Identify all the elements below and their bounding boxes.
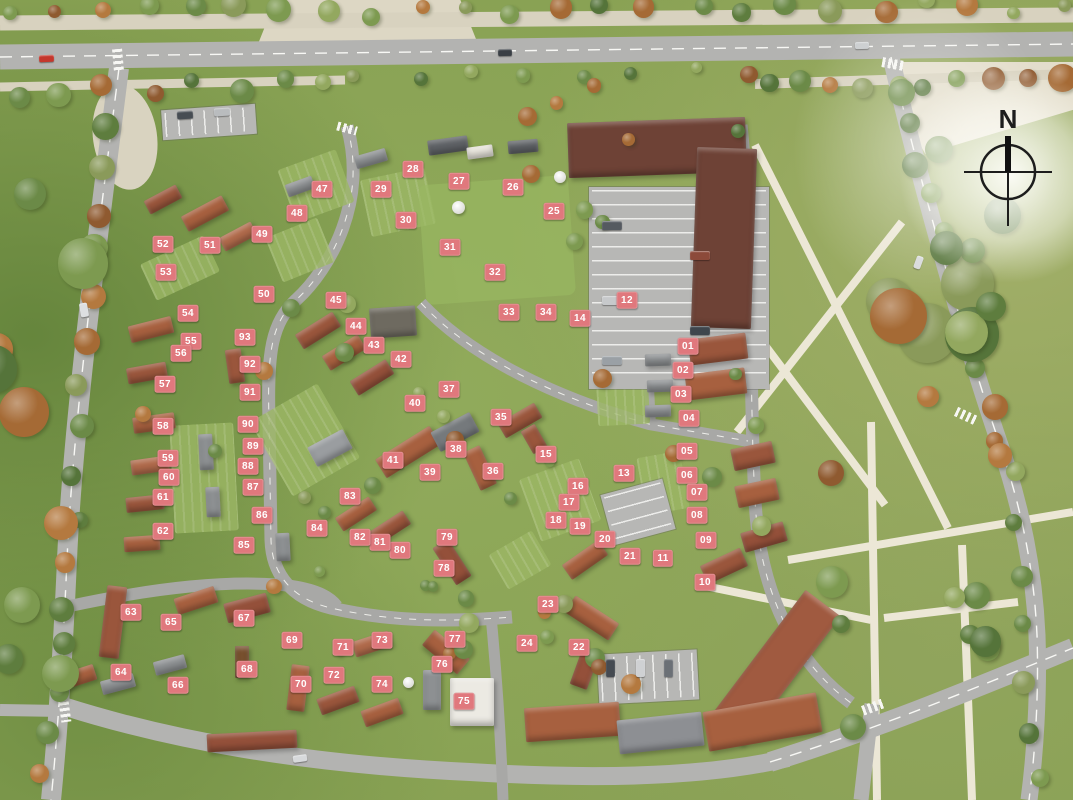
tree [277,70,294,87]
plot-marker-77[interactable]: 77 [445,631,466,648]
plot-marker-84[interactable]: 84 [307,520,328,537]
tree [147,85,164,102]
tree [504,492,517,505]
tree [1005,514,1022,531]
plot-marker-34[interactable]: 34 [536,304,557,321]
plot-marker-30[interactable]: 30 [396,212,417,229]
tree [917,386,939,408]
tree [4,587,40,623]
tree [298,491,311,504]
tree [314,566,325,577]
tree [748,417,764,433]
plot-marker-76[interactable]: 76 [432,656,453,673]
plot-marker-41[interactable]: 41 [383,452,404,469]
plot-marker-17[interactable]: 17 [559,494,580,511]
building [507,138,538,154]
tree [459,1,472,14]
crosswalk [112,49,124,72]
plot-marker-40[interactable]: 40 [405,395,426,412]
plot-marker-60[interactable]: 60 [159,469,180,486]
plot-marker-69[interactable]: 69 [282,632,303,649]
plot-marker-72[interactable]: 72 [324,667,345,684]
tree [89,155,114,180]
plot-marker-04[interactable]: 04 [679,410,700,427]
plot-marker-73[interactable]: 73 [372,632,393,649]
tree [458,590,474,606]
plot-marker-13[interactable]: 13 [614,465,635,482]
plot-marker-51[interactable]: 51 [200,237,221,254]
tree [948,70,964,86]
car [690,251,710,260]
compass-icon: N [958,104,1058,226]
tree [982,394,1007,419]
tree [1011,566,1032,587]
tree [691,62,702,73]
plot-marker-48[interactable]: 48 [287,205,308,222]
building [423,670,441,710]
tree [963,582,990,609]
plot-marker-31[interactable]: 31 [440,239,461,256]
plot-marker-90[interactable]: 90 [238,416,259,433]
tree [58,238,109,289]
tree [875,1,897,23]
tree [282,299,300,317]
plot-marker-81[interactable]: 81 [370,534,391,551]
plot-marker-36[interactable]: 36 [483,463,504,480]
tree [760,74,778,92]
plot-marker-80[interactable]: 80 [390,542,411,559]
plot-marker-14[interactable]: 14 [570,310,591,327]
tree [266,579,282,595]
tree [318,506,330,518]
plot-marker-56[interactable]: 56 [171,345,192,362]
plot-marker-66[interactable]: 66 [168,677,189,694]
tree [988,443,1012,467]
plot-marker-21[interactable]: 21 [620,548,641,565]
tree [49,597,74,622]
tree [591,659,607,675]
tree [3,6,17,20]
plot-marker-25[interactable]: 25 [544,203,565,220]
building [645,405,671,418]
plot-marker-52[interactable]: 52 [153,236,174,253]
plot-marker-15[interactable]: 15 [536,446,557,463]
plot-marker-37[interactable]: 37 [439,381,460,398]
plot-marker-86[interactable]: 86 [252,507,273,524]
plot-marker-26[interactable]: 26 [503,179,524,196]
tree [318,0,339,21]
plot-marker-88[interactable]: 88 [238,458,259,475]
tree [1014,615,1031,632]
plot-marker-63[interactable]: 63 [121,604,142,621]
plot-marker-42[interactable]: 42 [391,351,412,368]
tree [729,368,741,380]
plot-marker-16[interactable]: 16 [568,478,589,495]
tree [44,506,78,540]
plot-marker-58[interactable]: 58 [153,418,174,435]
tree [566,233,583,250]
plot-marker-08[interactable]: 08 [687,507,708,524]
tree [74,328,101,355]
plot-marker-12[interactable]: 12 [617,292,638,309]
car [602,221,622,230]
plot-marker-22[interactable]: 22 [569,639,590,656]
building [647,380,673,393]
building [645,354,671,367]
tree [208,444,222,458]
plot-marker-68[interactable]: 68 [237,661,258,678]
plot-marker-92[interactable]: 92 [240,356,261,373]
tree [740,66,758,84]
plot-marker-03[interactable]: 03 [671,386,692,403]
tree [914,79,931,96]
tree [414,72,428,86]
car [214,107,231,116]
plot-marker-74[interactable]: 74 [372,676,393,693]
plot-marker-64[interactable]: 64 [111,664,132,681]
tree [61,466,81,486]
car [855,41,869,48]
plot-marker-71[interactable]: 71 [333,639,354,656]
building [275,533,290,562]
tree [752,516,772,536]
plot-marker-75[interactable]: 75 [454,693,475,710]
plot-marker-06[interactable]: 06 [677,467,698,484]
plot-marker-93[interactable]: 93 [235,329,256,346]
tree [518,107,537,126]
plot-marker-65[interactable]: 65 [161,614,182,631]
tree [789,70,811,92]
building [691,147,757,329]
tree [1007,7,1019,19]
tree [1006,462,1025,481]
tree [9,87,30,108]
plot-marker-50[interactable]: 50 [254,286,275,303]
plot-marker-24[interactable]: 24 [517,635,538,652]
plot-marker-29[interactable]: 29 [371,181,392,198]
plot-marker-07[interactable]: 07 [687,484,708,501]
tree [731,124,745,138]
tree [1058,0,1071,12]
tree [135,406,151,422]
plot-marker-35[interactable]: 35 [491,409,512,426]
tree [593,369,612,388]
plot-marker-18[interactable]: 18 [546,512,567,529]
plot-marker-79[interactable]: 79 [437,529,458,546]
tree [522,165,540,183]
plot-marker-62[interactable]: 62 [153,523,174,540]
tree [55,552,76,573]
tree [816,566,848,598]
car [498,48,512,55]
plot-marker-02[interactable]: 02 [673,362,694,379]
plot-marker-61[interactable]: 61 [153,489,174,506]
tree [1019,723,1039,743]
tree [902,152,928,178]
plot-marker-70[interactable]: 70 [291,676,312,693]
plot-marker-05[interactable]: 05 [677,443,698,460]
gazebo [403,677,414,688]
tree [65,374,87,396]
tree [540,630,554,644]
tree [87,204,111,228]
plot-marker-87[interactable]: 87 [243,479,264,496]
plot-marker-49[interactable]: 49 [252,226,273,243]
gazebo [554,171,566,183]
plot-marker-27[interactable]: 27 [449,173,470,190]
tree [46,83,71,108]
plot-marker-57[interactable]: 57 [155,376,176,393]
plot-marker-83[interactable]: 83 [340,488,361,505]
tree [870,288,926,344]
plot-marker-54[interactable]: 54 [178,305,199,322]
plot-marker-44[interactable]: 44 [346,318,367,335]
tree [0,387,49,437]
compass-north-label: N [999,104,1018,134]
tree [92,113,119,140]
car [602,356,622,365]
tree [930,231,963,264]
plot-marker-47[interactable]: 47 [312,181,333,198]
plot-marker-38[interactable]: 38 [446,441,467,458]
car [38,54,53,62]
tree [30,764,49,783]
plot-marker-23[interactable]: 23 [538,596,559,613]
plot-marker-09[interactable]: 09 [696,532,717,549]
plot-marker-78[interactable]: 78 [434,560,455,577]
car [636,659,645,677]
tree [464,65,478,79]
tree [362,8,380,26]
tree [53,632,75,654]
tree [925,136,952,163]
building [369,305,417,338]
tree [976,292,1006,322]
tree [230,79,254,103]
plot-marker-91[interactable]: 91 [240,384,261,401]
plot-marker-43[interactable]: 43 [364,337,385,354]
building [205,487,221,518]
plot-marker-45[interactable]: 45 [326,292,347,309]
plot-marker-59[interactable]: 59 [158,450,179,467]
tree [36,721,59,744]
tree [1019,69,1037,87]
masterplan: N 01020304050607080910111213141516171819… [0,0,1073,800]
plot-marker-53[interactable]: 53 [156,264,177,281]
plot-marker-28[interactable]: 28 [403,161,424,178]
tree [822,77,838,93]
plot-marker-10[interactable]: 10 [695,574,716,591]
plot-marker-32[interactable]: 32 [485,264,506,281]
tree [622,133,635,146]
plot-marker-39[interactable]: 39 [420,464,441,481]
tree [335,343,354,362]
tree [500,5,519,24]
plot-marker-89[interactable]: 89 [243,438,264,455]
plot-marker-67[interactable]: 67 [234,610,255,627]
tree [1048,64,1073,93]
tree [732,3,750,21]
car [293,754,308,763]
car [690,326,710,335]
tree [888,79,915,106]
tree [944,587,965,608]
car [664,659,673,677]
plot-marker-33[interactable]: 33 [499,304,520,321]
plot-marker-19[interactable]: 19 [570,518,591,535]
plot-marker-85[interactable]: 85 [234,537,255,554]
plot-marker-82[interactable]: 82 [350,529,371,546]
building [523,702,620,743]
car [177,110,194,119]
compass-needle [1005,136,1011,172]
plot-marker-01[interactable]: 01 [678,338,699,355]
tree [852,78,873,99]
plot-marker-11[interactable]: 11 [653,550,673,567]
car [606,659,615,677]
gazebo [452,201,465,214]
plot-marker-20[interactable]: 20 [595,531,616,548]
